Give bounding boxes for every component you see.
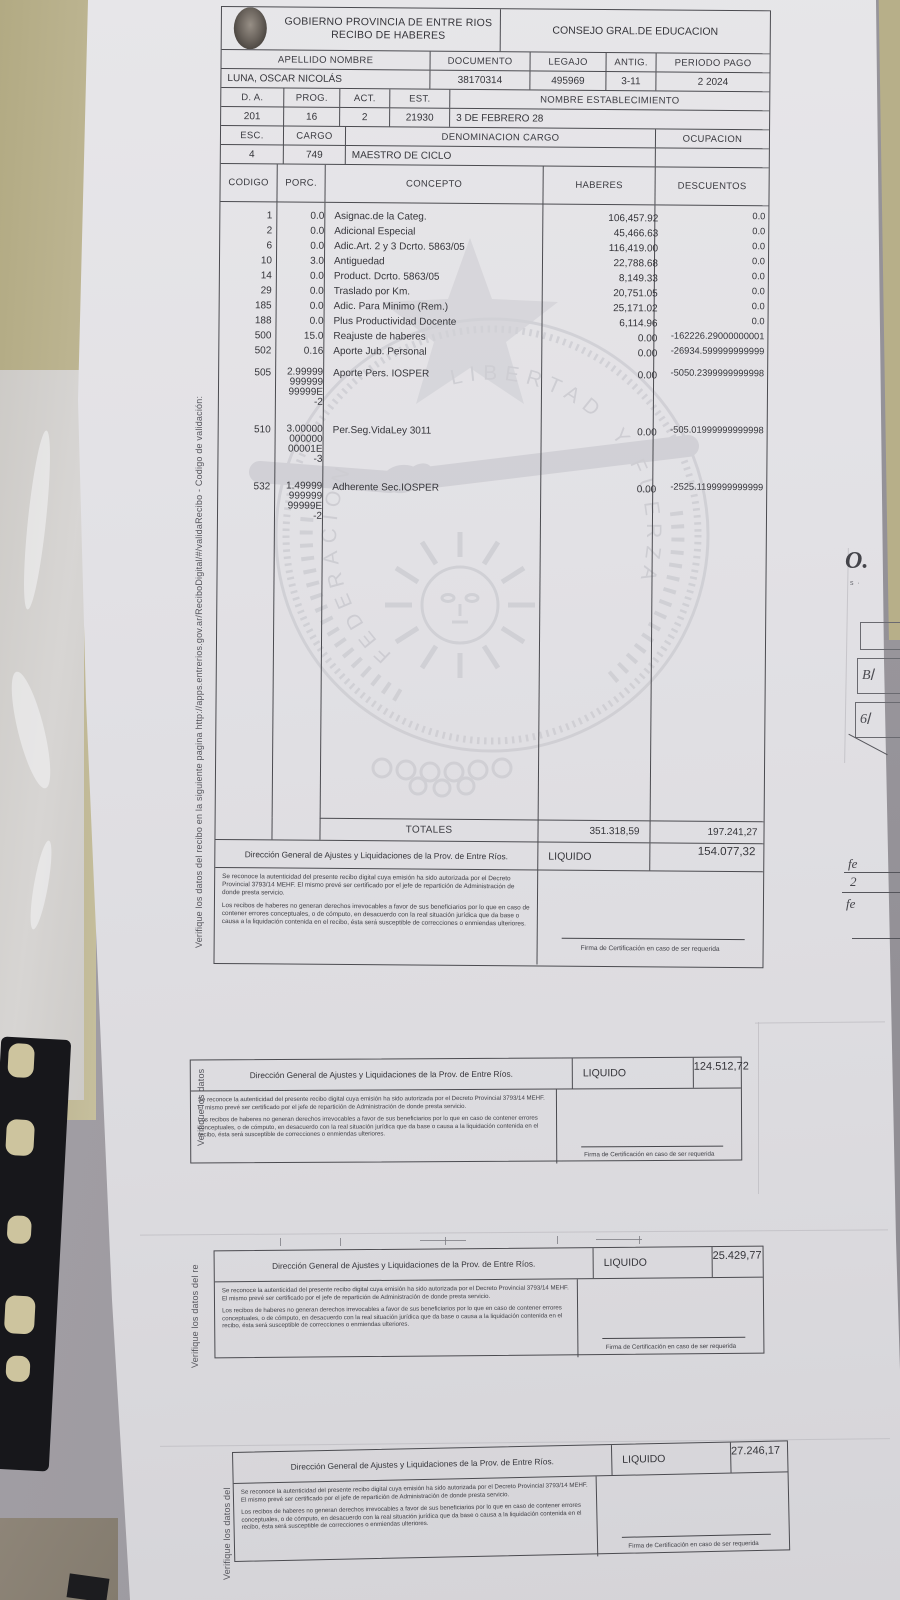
row-haberes: 0.00 [547,331,665,347]
row-porc: 0.0 [277,298,328,313]
row-code: 185 [220,298,277,313]
receipt-3: Dirección General de Ajustes y Liquidaci… [214,1246,765,1359]
receipt-4: Dirección General de Ajustes y Liquidaci… [232,1440,790,1562]
row-descuentos: -2525.1199999999999 [664,481,766,493]
value-act: 2 [339,108,389,126]
fragment-letter-o: O. [845,548,868,575]
header-codigo: CODIGO [220,164,276,201]
legal-row: Se reconoce la autenticidad del presente… [215,1277,764,1361]
label-legajo: LEGAJO [530,52,606,71]
row-porc: 3.0 [277,253,328,268]
faint-table-mark [280,1238,281,1246]
employee-name: LUNA, OSCAR NICOLÁS [221,69,429,89]
label-antig: ANTIG. [606,53,656,71]
legal-row: Se reconoce la autenticidad del presente… [191,1088,741,1166]
faint-table-mark [557,1236,558,1244]
label-prog: PROG. [283,88,339,106]
value-est: 21930 [389,108,449,126]
label-periodo-pago: PERIODO PAGO [655,53,769,72]
label-establecimiento: NOMBRE ESTABLECIMIENTO [449,90,769,111]
value-establecimiento: 3 DE FEBRERO 28 [449,109,769,130]
plastic-glare [4,669,58,792]
photographed-pay-receipt-scene: FEDERACION LIBERTAD Y FUERZA GOBIERNO PR… [0,0,900,1600]
value-esc: 4 [221,145,283,163]
row-concept: Product. Dcrto. 5863/05 [328,269,548,286]
row-code: 505 [219,367,276,378]
totals-spacer [215,817,271,839]
row-porc: 2.99999 999999 99999E -2 [276,367,327,407]
signature-caption: Firma de Certificación en caso de ser re… [557,1151,741,1159]
row-haberes: 0.00 [547,370,665,382]
employee-document: 38170314 [429,71,529,90]
receipt-title: RECIBO DE HABERES [277,28,500,43]
row-haberes: 22,788.68 [548,256,666,272]
row-haberes: 6,114.96 [547,316,665,332]
fragment-handwriting-fe: fe [848,856,857,872]
concept-row: 5321.49999 999999 99999E -2Adherente Sec… [218,480,766,525]
liquido-label: LIQUIDO [593,1247,712,1278]
row-descuentos: 0.0 [665,314,767,330]
row-code: 188 [219,313,276,328]
org-name: GOBIERNO PROVINCIA DE ENTRE RIOS [277,15,500,30]
totals-haberes: 351.318,59 [537,820,649,843]
council-name: CONSEJO GRAL.DE EDUCACION [500,9,770,53]
fragment-digit-six: 6 [860,712,867,728]
validation-note-vertical: Verifique los datos del re [190,1264,200,1368]
row-porc: 0.16 [276,343,327,358]
concept-row: 5103.00000 000000 00001E -3Per.Seg.VidaL… [218,423,766,468]
liquido-label: LIQUIDO [537,843,649,871]
org-titles: GOBIERNO PROVINCIA DE ENTRE RIOS RECIBO … [277,15,500,43]
fragment-rule [844,872,900,873]
legal-text-box: Se reconoce la autenticidad del presente… [215,1279,578,1360]
header-concepto: CONCEPTO [324,165,542,204]
signature-area: Firma de Certificación en caso de ser re… [536,871,763,967]
row-descuentos: -26934.599999999999 [665,344,767,360]
row-concept: Aporte Jub. Personal [327,344,547,361]
label-est: EST. [389,89,449,107]
direccion-label: Dirección General de Ajustes y Liquidaci… [215,840,537,870]
validation-note-vertical: Verifique los datos del [222,1487,232,1580]
signature-line [562,938,745,940]
sheet-edge [758,1022,759,1194]
fragment-box: 6/ [855,702,900,738]
row-descuentos: -162226.29000000001 [665,329,767,345]
row-descuentos: 0.0 [666,299,768,315]
row-code: 6 [220,238,277,253]
binder-hole [7,1215,32,1244]
binder-hole [4,1295,36,1335]
row-code: 14 [220,268,277,283]
label-denominacion-cargo: DENOMINACION CARGO [345,127,655,147]
floor-shadow [67,1573,110,1600]
row-haberes: 0.00 [546,484,664,496]
value-denominacion-cargo: MAESTRO DE CICLO [345,146,655,166]
fragment-rule [842,892,900,893]
receipt-2: Dirección General de Ajustes y Liquidaci… [190,1057,743,1164]
row-porc: 1.49999 999999 99999E -2 [275,481,326,521]
row-descuentos: -505.01999999999998 [665,424,767,436]
row-haberes: 0.00 [547,346,665,362]
plastic-glare [19,430,56,611]
fragment-letter-b: B [862,668,871,684]
binder-hole [5,1119,35,1156]
legal-row: Se reconoce la autenticidad del presente… [234,1471,790,1564]
label-esc: ESC. [221,126,283,144]
row-concept: Per.Seg.VidaLey 3011 [327,425,547,438]
legal-paragraph-2: Los recibos de haberes no generan derech… [198,1115,549,1140]
signature-area: Firma de Certificación en caso de ser re… [577,1278,764,1358]
legal-paragraph-2: Los recibos de haberes no generan derech… [222,902,530,928]
totals-spacer [271,817,319,839]
liquido-row: Dirección General de Ajustes y Liquidaci… [191,1058,741,1091]
legal-text-box: Se reconoce la autenticidad del presente… [214,868,537,965]
row-descuentos: 0.0 [666,209,768,225]
employee-antig: 3-11 [605,72,655,90]
signature-line [622,1534,771,1538]
row-porc: 0.0 [277,283,328,298]
direccion-label: Dirección General de Ajustes y Liquidaci… [191,1058,572,1090]
totals-descuentos: 197.241,27 [649,820,763,843]
liquido-label: LIQUIDO [611,1443,731,1475]
row-haberes: 45,466.63 [548,226,666,242]
faint-table-mark [420,1240,466,1241]
row-porc: 0.0 [277,238,328,253]
totals-row: TOTALES 351.318,59 197.241,27 [215,817,763,843]
row-concept: Reajuste de haberes [327,329,547,346]
concept-row: 5052.99999 999999 99999E -2Aporte Pers. … [219,366,767,411]
plastic-sleeve [0,370,84,1100]
concept-header-row: CODIGO PORC. CONCEPTO HABERES DESCUENTOS [220,163,768,205]
fragment-small-marks: s · [850,580,860,587]
legal-text-box: Se reconoce la autenticidad del presente… [191,1090,556,1166]
binder-hole [7,1043,35,1078]
row-code: 500 [219,328,276,343]
signature-caption: Firma de Certificación en caso de ser re… [538,945,763,954]
employee-legajo: 495969 [529,71,605,90]
row-haberes: 20,751.05 [548,286,666,302]
validation-note-vertical: Verifique los datos del recibo en la sig… [194,396,204,948]
row-haberes: 0.00 [547,427,665,439]
row-concept: Asignac.de la Categ. [328,209,548,226]
row-porc: 0.0 [277,208,328,223]
binder-hole [5,1355,30,1382]
fragment-box: B/ [857,658,900,694]
plastic-glare [26,839,55,930]
row-concept: Antiguedad [328,254,548,271]
label-apellido-nombre: APELLIDO NOMBRE [222,50,430,70]
signature-line [602,1337,745,1339]
signature-caption: Firma de Certificación en caso de ser re… [598,1539,789,1550]
row-concept: Adicional Especial [328,224,548,241]
row-haberes: 106,457.92 [548,211,666,227]
fragment-box [860,622,900,650]
label-cargo: CARGO [283,126,345,144]
provincial-seal-logo [234,7,267,49]
receipt-header-row: GOBIERNO PROVINCIA DE ENTRE RIOS RECIBO … [222,7,770,53]
value-cargo: 749 [283,145,345,163]
totals-label: TOTALES [319,818,537,842]
liquido-row: Dirección General de Ajustes y Liquidaci… [215,1247,763,1282]
legal-paragraph-1: Se reconoce la autenticidad del presente… [222,873,530,899]
signature-caption: Firma de Certificación en caso de ser re… [578,1343,763,1352]
row-concept: Aporte Pers. IOSPER [327,368,547,381]
legal-row: Se reconoce la autenticidad del presente… [214,867,763,966]
main-receipt: GOBIERNO PROVINCIA DE ENTRE RIOS RECIBO … [213,6,771,968]
legal-paragraph-2: Los recibos de haberes no generan derech… [222,1304,570,1330]
legal-text-box: Se reconoce la autenticidad del presente… [234,1476,598,1564]
row-haberes: 8,149.33 [548,271,666,287]
row-concept: Traslado por Km. [328,284,548,301]
header-haberes: HABERES [542,167,654,205]
liquido-row: Dirección General de Ajustes y Liquidaci… [215,839,763,871]
row-porc: 0.0 [276,313,327,328]
header-descuentos: DESCUENTOS [654,167,768,205]
value-prog: 16 [283,107,339,125]
legal-paragraph-1: Se reconoce la autenticidad del presente… [198,1095,549,1112]
row-code: 510 [219,424,276,435]
row-haberes: 25,171.02 [548,301,666,317]
row-code: 10 [220,253,277,268]
row-haberes: 116,419.00 [548,241,666,257]
row-code: 29 [220,283,277,298]
binder-spine [0,1036,71,1471]
value-ocupacion [655,148,769,167]
liquido-amount: 27.246,17 [730,1441,789,1472]
org-title-cell: GOBIERNO PROVINCIA DE ENTRE RIOS RECIBO … [222,7,500,51]
legal-paragraph-1: Se reconoce la autenticidad del presente… [222,1284,570,1302]
row-concept: Adic. Para Minimo (Rem.) [328,299,548,316]
faint-table-mark [596,1239,642,1240]
legal-paragraph-2: Los recibos de haberes no generan derech… [241,1502,589,1532]
label-ocupacion: OCUPACION [655,129,769,148]
row-concept: Plus Productividad Docente [327,314,547,331]
fragment-handwriting-2: 2 [850,874,857,890]
concept-row: 5020.16Aporte Jub. Personal0.00-26934.59… [219,343,767,362]
fragment-rule [852,938,900,939]
liquido-amount: 124.512,72 [693,1057,757,1087]
row-code: 532 [218,481,275,492]
header-porc: PORC. [276,164,324,201]
label-act: ACT. [339,89,389,107]
signature-line [581,1146,723,1148]
row-descuentos: 0.0 [666,224,768,240]
label-da: D. A. [221,88,283,106]
faint-table-mark [340,1238,341,1246]
liquido-label: LIQUIDO [572,1058,693,1089]
validation-note-vertical: Verifique los datos [196,1069,206,1146]
row-code: 502 [219,343,276,358]
row-porc: 3.00000 000000 00001E -3 [275,424,326,464]
signature-area: Firma de Certificación en caso de ser re… [556,1089,741,1164]
value-da: 201 [221,107,283,125]
signature-area: Firma de Certificación en caso de ser re… [596,1472,790,1556]
liquido-amount: 154.077,32 [649,843,763,871]
row-porc: 15.0 [276,328,327,343]
row-porc: 0.0 [277,223,328,238]
row-concept: Adic.Art. 2 y 3 Dcrto. 5863/05 [328,239,548,256]
row-descuentos: -5050.2399999999998 [665,367,767,379]
row-porc: 0.0 [277,268,328,283]
legal-paragraph-1: Se reconoce la autenticidad del presente… [241,1482,589,1504]
row-descuentos: 0.0 [666,254,768,270]
employee-periodo: 2 2024 [655,72,769,91]
row-concept: Adherente Sec.IOSPER [326,482,546,495]
concept-detail-area: 10.0Asignac.de la Categ.106,457.920.0 20… [216,201,769,821]
direccion-label: Dirección General de Ajustes y Liquidaci… [215,1248,593,1281]
row-descuentos: 0.0 [666,269,768,285]
row-descuentos: 0.0 [666,284,768,300]
row-code: 1 [220,208,277,223]
row-descuentos: 0.0 [666,239,768,255]
fragment-handwriting-fe2: fe [846,896,855,912]
label-documento: DOCUMENTO [430,52,530,71]
liquido-amount: 25.429,77 [712,1247,770,1278]
row-code: 2 [220,223,277,238]
